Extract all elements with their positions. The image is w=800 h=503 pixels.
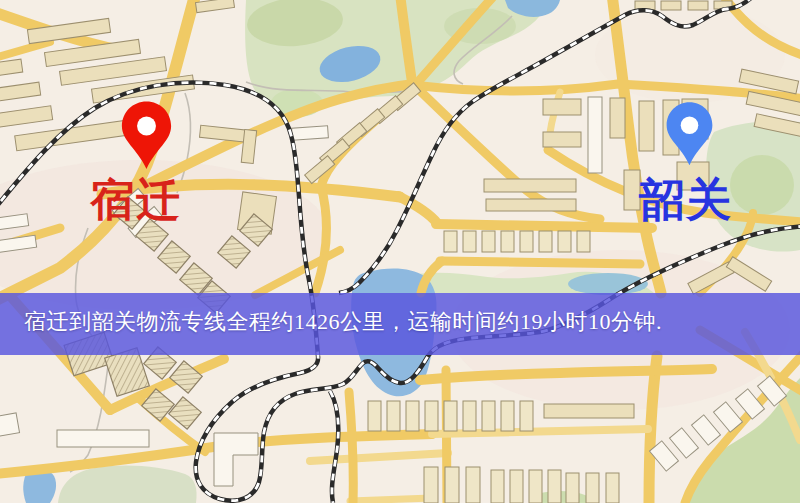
route-info-banner: 宿迁到韶关物流专线全程约1426公里，运输时间约19小时10分钟. (0, 293, 800, 355)
origin-city-label: 宿迁 (90, 179, 182, 223)
origin-pin-icon (119, 100, 174, 171)
destination-pin-icon (664, 101, 715, 167)
route-info-text: 宿迁到韶关物流专线全程约1426公里，运输时间约19小时10分钟. (24, 309, 662, 334)
destination-city-label: 韶关 (639, 178, 733, 222)
origin-pin-hole (137, 117, 156, 136)
map-background (0, 0, 800, 503)
logistics-route-map: 宿迁 韶关 宿迁到韶关物流专线全程约1426公里，运输时间约19小时10分钟. (0, 0, 800, 503)
destination-pin-hole (681, 116, 699, 134)
